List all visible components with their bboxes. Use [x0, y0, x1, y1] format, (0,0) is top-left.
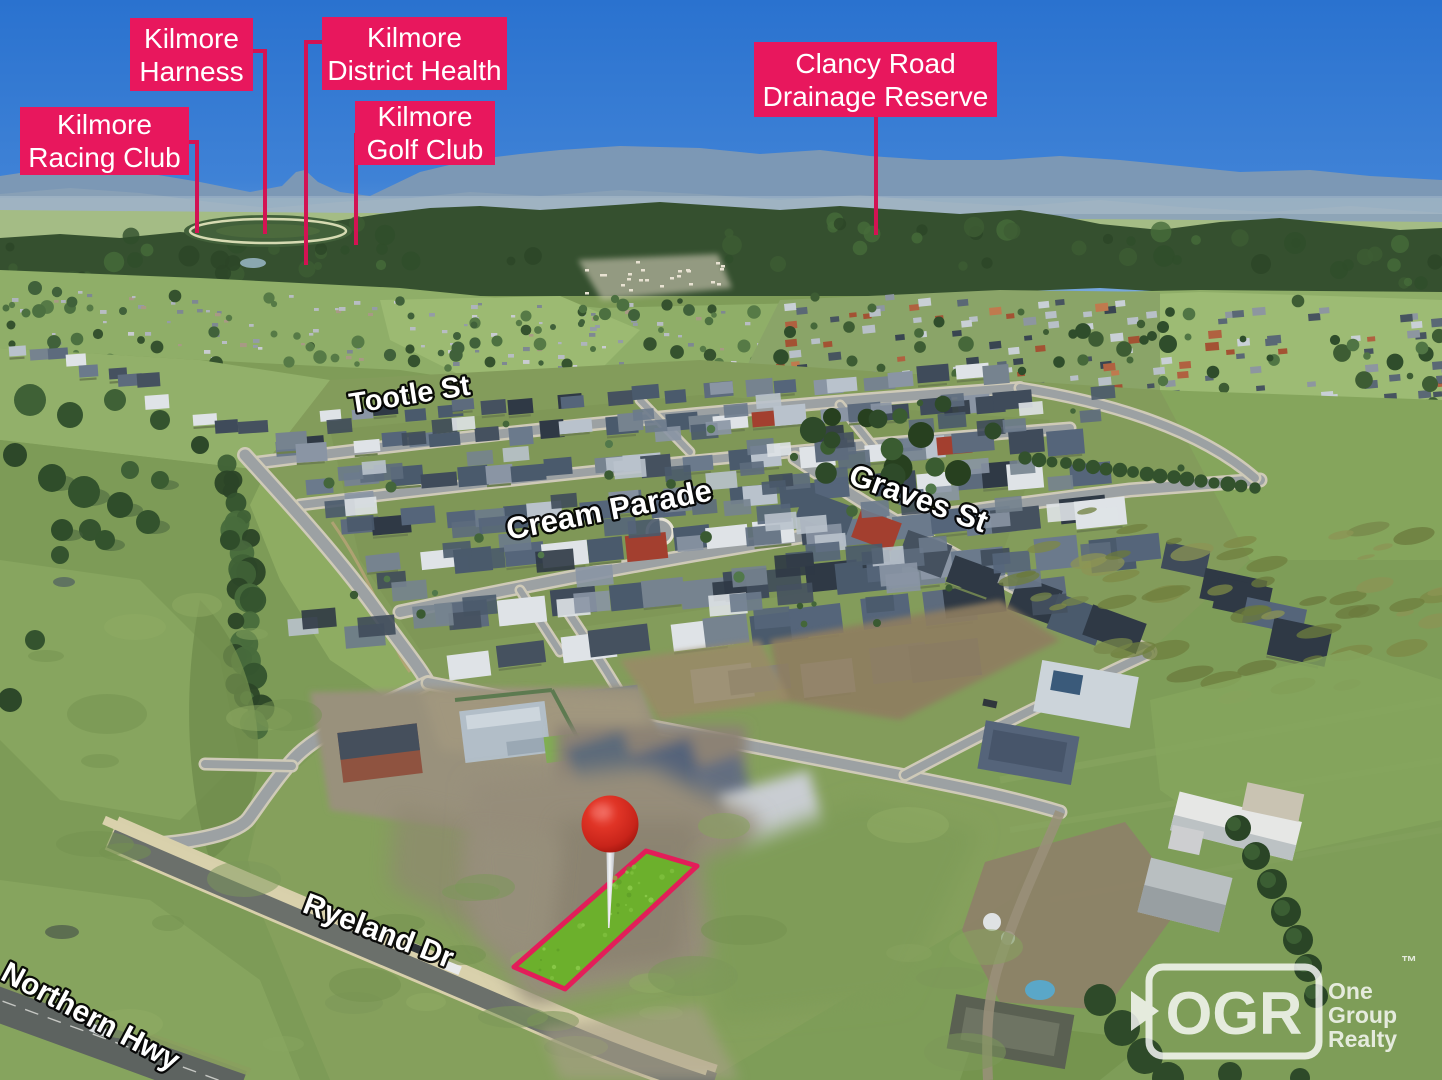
svg-text:Group: Group	[1328, 1002, 1397, 1028]
svg-text:Kilmore: Kilmore	[378, 101, 473, 132]
svg-text:Racing Club: Racing Club	[28, 142, 181, 173]
svg-text:One: One	[1328, 978, 1373, 1004]
svg-text:Kilmore: Kilmore	[144, 23, 239, 54]
svg-text:Realty: Realty	[1328, 1026, 1397, 1052]
svg-text:District Health: District Health	[327, 55, 501, 86]
svg-text:Drainage Reserve: Drainage Reserve	[763, 81, 989, 112]
svg-text:Golf Club: Golf Club	[367, 134, 484, 165]
svg-text:Kilmore: Kilmore	[57, 109, 152, 140]
svg-text:Clancy Road: Clancy Road	[795, 48, 955, 79]
svg-text:™: ™	[1401, 954, 1417, 971]
svg-text:Kilmore: Kilmore	[367, 22, 462, 53]
svg-text:Harness: Harness	[139, 56, 243, 87]
svg-text:OGR: OGR	[1166, 980, 1303, 1047]
